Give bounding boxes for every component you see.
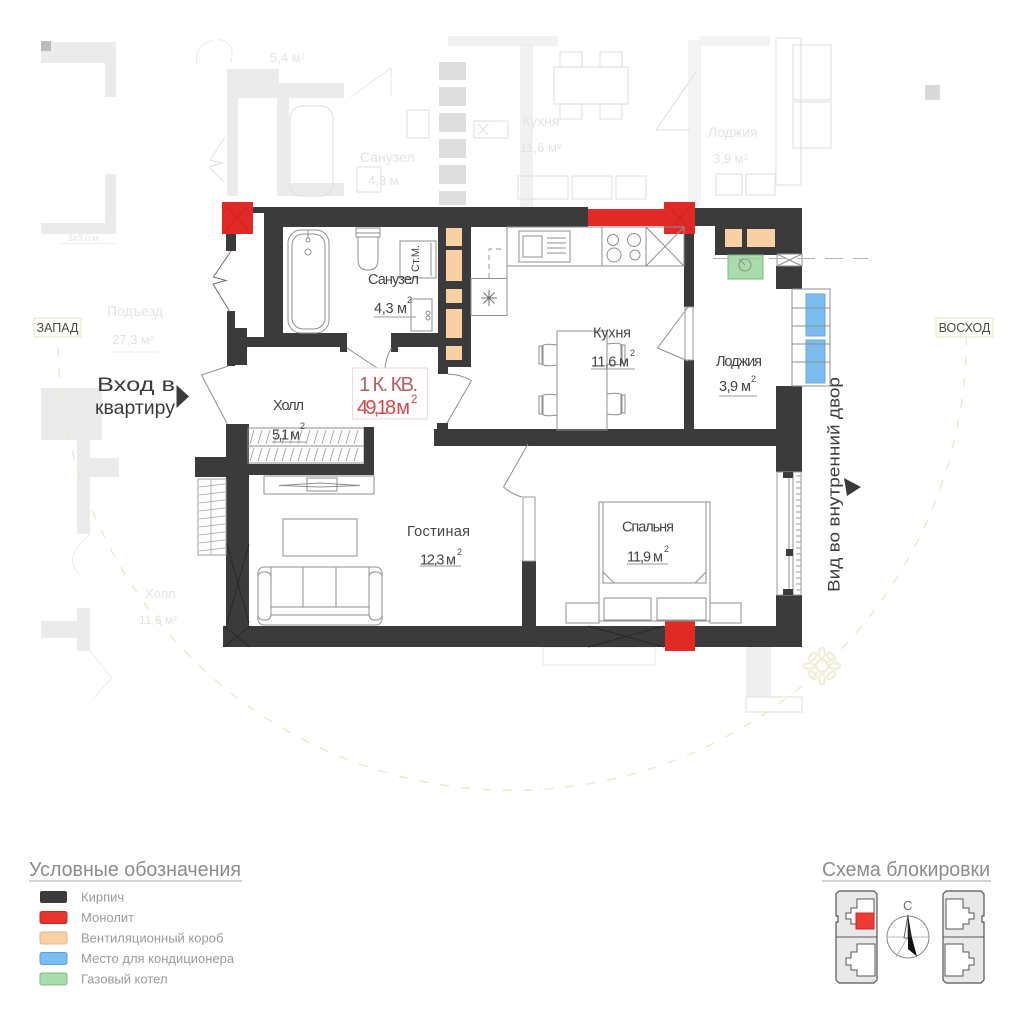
svg-text:ЗАПАД: ЗАПАД [37,321,79,335]
svg-text:2: 2 [751,374,756,384]
svg-text:11,6 м²: 11,6 м² [520,140,562,155]
svg-text:1 К. КВ.: 1 К. КВ. [359,374,418,396]
svg-text:Условные обозначения: Условные обозначения [29,859,241,881]
svg-text:Кухня: Кухня [593,326,631,342]
svg-text:Кухня: Кухня [522,113,559,129]
svg-text:Вентиляционный короб: Вентиляционный короб [81,931,223,946]
svg-text:Вход в: Вход в [97,374,175,396]
svg-text:11,9 м: 11,9 м [627,550,663,566]
svg-text:Ст.М.: Ст.М. [410,245,422,272]
svg-text:49,18 м: 49,18 м [357,397,410,419]
svg-text:2: 2 [411,394,417,406]
svg-text:3,9 м: 3,9 м [719,379,751,395]
svg-text:Кирпич: Кирпич [81,890,124,905]
svg-text:Вид во внутренний двор: Вид во внутренний двор [825,377,844,592]
svg-text:Место для кондиционера: Место для кондиционера [81,951,235,966]
svg-text:Холл: Холл [145,586,176,601]
svg-text:Холл: Холл [273,398,304,414]
svg-text:2: 2 [300,421,305,431]
svg-text:4,3 м: 4,3 м [374,301,407,317]
svg-text:Газовый котел: Газовый котел [81,972,168,987]
svg-text:С: С [903,898,912,913]
svg-text:квартиру: квартиру [95,397,175,419]
svg-text:Санузел: Санузел [368,272,419,288]
svg-text:Лоджия: Лоджия [716,354,762,370]
svg-text:5,1 м: 5,1 м [272,428,300,444]
svg-text:3,9 м²: 3,9 м² [713,151,749,166]
svg-text:3x3,0 м: 3x3,0 м [68,233,99,243]
svg-text:2: 2 [457,547,462,557]
svg-text:Спальня: Спальня [622,520,674,536]
svg-text:Лоджия: Лоджия [708,124,758,140]
svg-text:ВОСХОД: ВОСХОД [939,321,991,335]
svg-text:Санузел: Санузел [360,149,415,165]
svg-text:Монолит: Монолит [81,910,134,925]
svg-text:2: 2 [630,348,635,358]
svg-text:4,3 м: 4,3 м [368,173,399,188]
svg-text:5,4 м²: 5,4 м² [270,50,306,65]
svg-text:Подъезд: Подъезд [107,303,163,319]
svg-text:2: 2 [664,544,669,554]
svg-text:11,6 м: 11,6 м [591,355,629,371]
svg-text:2: 2 [407,295,412,305]
svg-text:27,3 м²: 27,3 м² [112,332,155,347]
svg-text:Гостиная: Гостиная [407,524,470,540]
svg-text:Схема блокировки: Схема блокировки [822,859,990,881]
